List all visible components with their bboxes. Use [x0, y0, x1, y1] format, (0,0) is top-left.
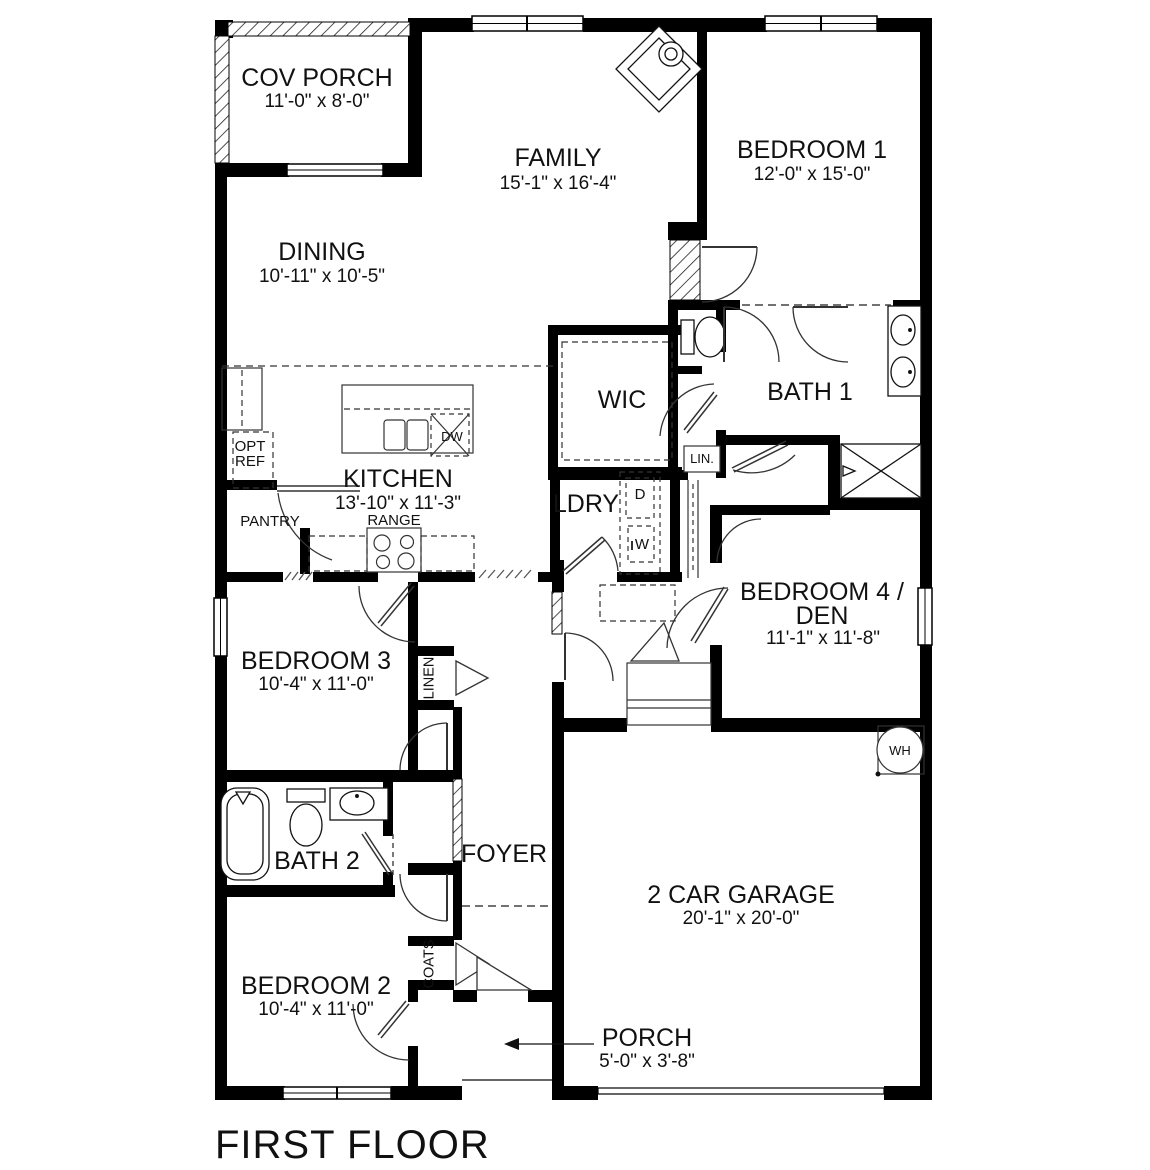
floor-plan: COV PORCH 11'-0" x 8'-0" FAMILY 15'-1" x…	[0, 0, 1150, 1170]
room-dims-porch: 5'-0" x 3'-8"	[599, 1052, 695, 1072]
room-dims-kitchen: 13'-10" x 11'-3"	[335, 494, 461, 514]
label-washer: W	[635, 537, 649, 553]
room-label-foyer: FOYER	[461, 841, 547, 867]
floor-title: FIRST FLOOR	[215, 1124, 490, 1166]
toilet-tank	[681, 320, 694, 354]
label-coats-closet: COATS	[422, 940, 437, 989]
label-opt-ref-line2: REF	[235, 454, 265, 470]
attic-access	[600, 585, 675, 621]
room-dims-dining: 10'-11" x 10'-5"	[259, 267, 385, 287]
label-lin-closet: LIN.	[690, 452, 714, 466]
room-label-garage: 2 CAR GARAGE	[647, 882, 835, 908]
room-dims-bedroom4: 11'-1" x 11'-8"	[766, 629, 880, 649]
room-label-dining: DINING	[278, 239, 366, 265]
room-label-kitchen: KITCHEN	[343, 466, 453, 492]
room-label-porch: PORCH	[602, 1025, 692, 1051]
room-dims-family: 15'-1" x 16'-4"	[500, 174, 617, 194]
room-label-bedroom2: BEDROOM 2	[241, 973, 391, 999]
label-range: RANGE	[367, 513, 420, 529]
fireplace	[616, 26, 702, 112]
island-sink	[384, 420, 405, 450]
room-dims-cov-porch: 11'-0" x 8'-0"	[265, 92, 370, 112]
label-linen-closet: LINEN	[422, 657, 437, 700]
room-label-family: FAMILY	[514, 145, 601, 171]
room-label-cov-porch: COV PORCH	[241, 65, 392, 91]
room-dims-bedroom3: 10'-4" x 11'-0"	[258, 675, 373, 695]
label-pantry: PANTRY	[240, 514, 299, 530]
toilet2-bowl	[290, 804, 322, 846]
room-dims-bedroom2: 10'-4" x 11'-0"	[258, 1000, 373, 1020]
room-dims-garage: 20'-1" x 20'-0"	[683, 909, 800, 929]
room-label-laundry: LDRY	[553, 491, 619, 517]
room-label-bedroom3: BEDROOM 3	[241, 648, 391, 674]
room-label-bedroom1: BEDROOM 1	[737, 137, 887, 163]
toilet2-tank	[287, 789, 325, 802]
label-water-heater: WH	[889, 744, 911, 758]
toilet-bowl	[695, 317, 725, 357]
room-label-bath2: BATH 2	[274, 848, 360, 874]
label-dishwasher: DW	[441, 430, 463, 444]
garage-door	[598, 1088, 884, 1094]
porch-arrow	[504, 1038, 594, 1050]
garage-landing	[627, 663, 711, 725]
room-dims-bedroom1: 12'-0" x 15'-0"	[754, 165, 871, 185]
room-label-wic: WIC	[598, 387, 647, 413]
label-dryer: D	[635, 487, 646, 503]
room-label-bath1: BATH 1	[767, 379, 853, 405]
room-label-bedroom4-line2: DEN	[796, 603, 849, 629]
